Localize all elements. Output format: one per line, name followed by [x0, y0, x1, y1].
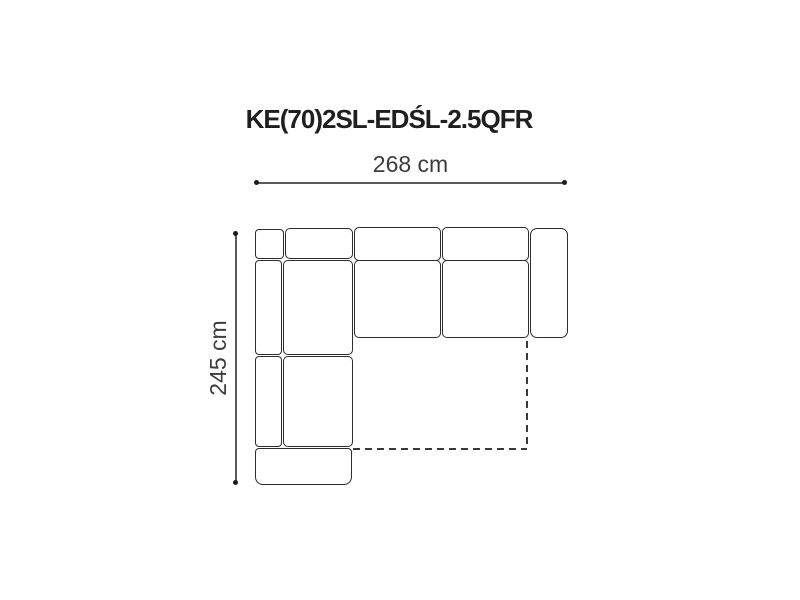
seat-cushion-right — [442, 260, 529, 338]
left-seat-cushion — [283, 356, 353, 447]
dimension-endpoint-dot — [562, 180, 567, 185]
front-armrest — [255, 448, 352, 485]
back-cushion-over-corner-seat — [285, 228, 353, 259]
width-dimension-label: 268 cm — [256, 151, 565, 178]
corner-seat-cushion — [283, 260, 353, 355]
dimension-endpoint-dot — [254, 180, 259, 185]
right-armrest — [530, 228, 568, 338]
fold-out-bed-dashed-outline-horizontal — [353, 448, 527, 450]
dimension-endpoint-dot — [233, 480, 238, 485]
corner-back-cushion — [255, 229, 284, 259]
left-back-cushion-lower — [255, 356, 282, 447]
left-back-cushion-upper — [255, 260, 282, 355]
dimension-endpoint-dot — [233, 231, 238, 236]
seat-cushion-middle — [354, 260, 441, 338]
back-cushion-right — [442, 227, 529, 261]
fold-out-bed-dashed-outline-vertical — [526, 341, 528, 449]
back-cushion-middle — [354, 227, 441, 261]
sofa-dimension-diagram: KE(70)2SL-EDŚL-2.5QFR 268 cm 245 cm — [0, 0, 800, 600]
width-dimension-line — [256, 182, 565, 184]
depth-dimension-line — [235, 233, 237, 483]
depth-dimension-label: 245 cm — [205, 288, 231, 428]
product-code-title: KE(70)2SL-EDŚL-2.5QFR — [0, 104, 778, 135]
